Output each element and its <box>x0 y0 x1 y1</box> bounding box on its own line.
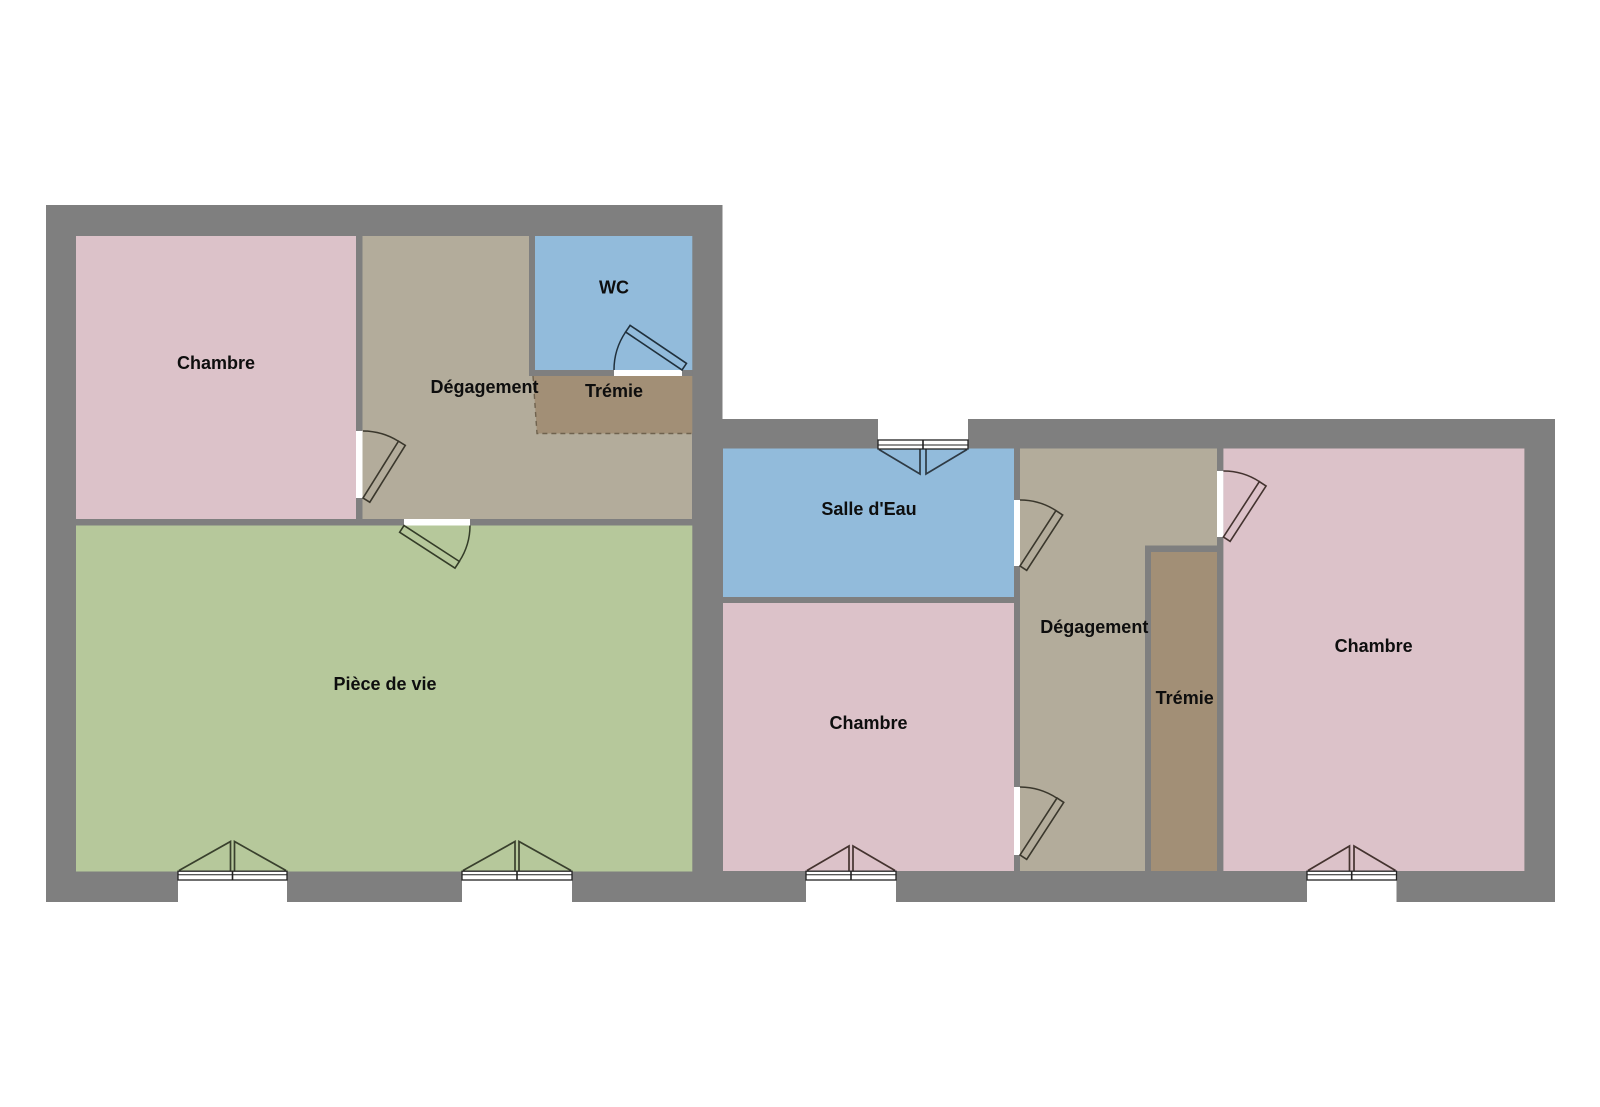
svg-text:Chambre: Chambre <box>1335 636 1413 656</box>
svg-text:Trémie: Trémie <box>585 381 643 401</box>
svg-text:Pièce de vie: Pièce de vie <box>333 674 436 694</box>
svg-text:WC: WC <box>599 278 629 298</box>
svg-text:Salle d'Eau: Salle d'Eau <box>821 499 916 519</box>
svg-text:Dégagement: Dégagement <box>430 377 538 397</box>
svg-text:Dégagement: Dégagement <box>1040 617 1148 637</box>
svg-text:Chambre: Chambre <box>177 353 255 373</box>
svg-text:Chambre: Chambre <box>829 713 907 733</box>
svg-text:Trémie: Trémie <box>1156 688 1214 708</box>
